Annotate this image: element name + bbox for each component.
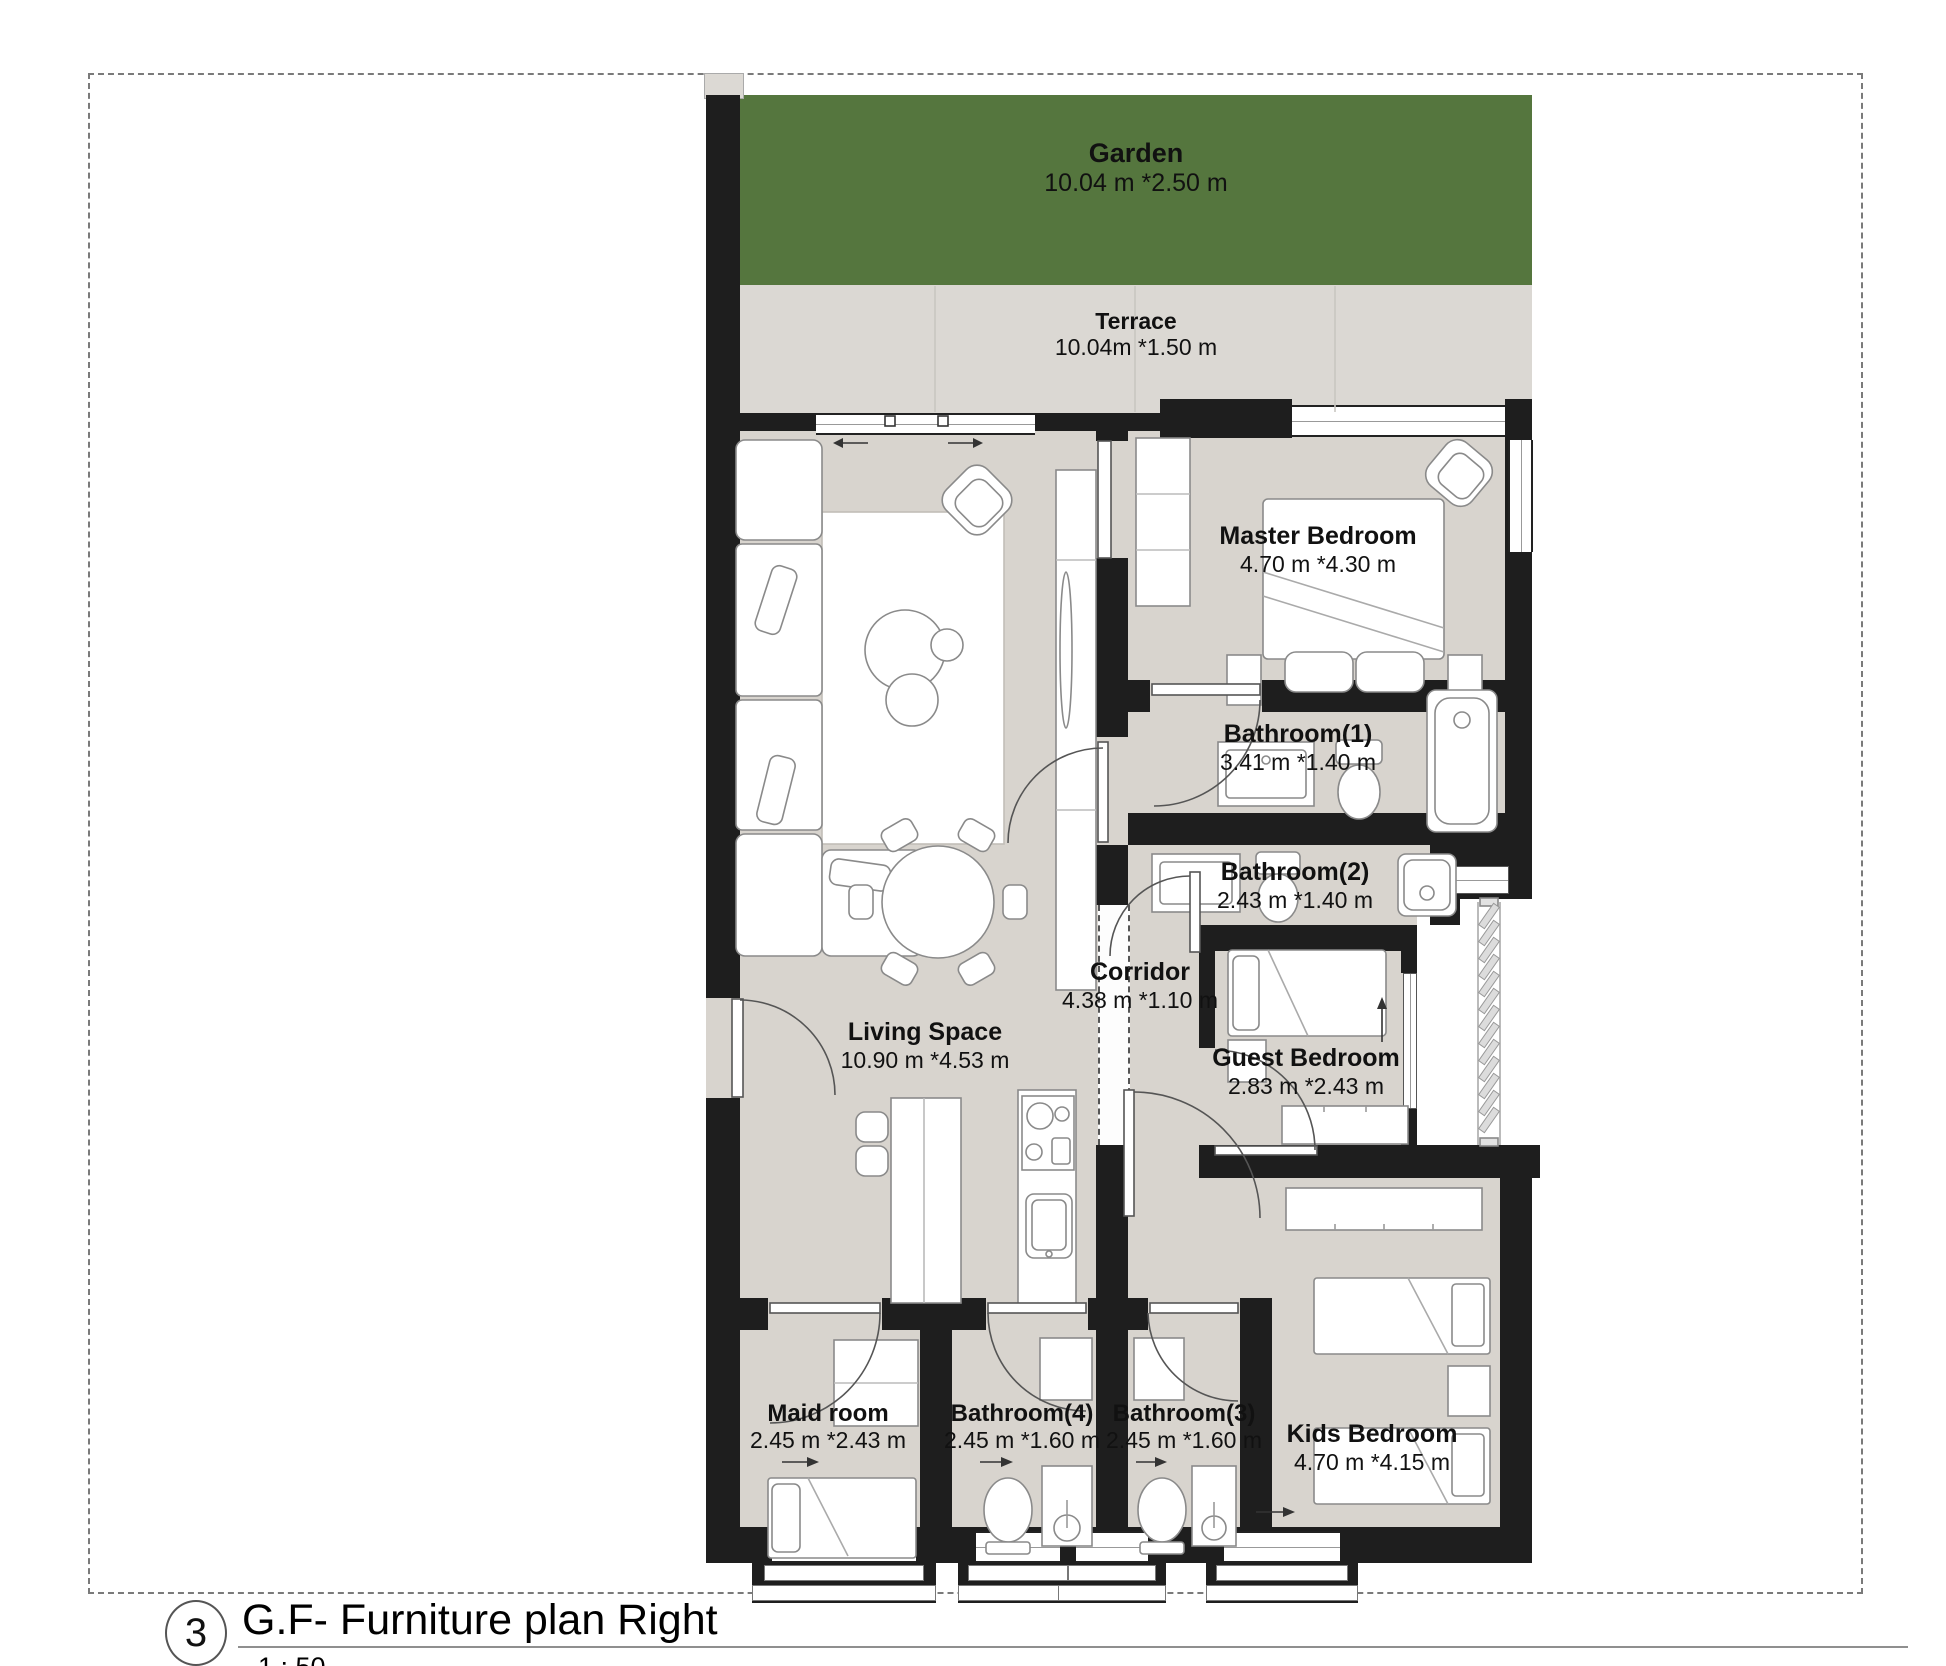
wall-bath2-right <box>1430 899 1460 925</box>
sheet-scale: 1 : 50 <box>258 1652 326 1666</box>
room-label-kids-bedroom: Kids Bedroom 4.70 m *4.15 m <box>1287 1420 1458 1475</box>
wall-guest-east-1 <box>1401 925 1417 973</box>
window-maid-south <box>772 1531 916 1563</box>
room-label-bathroom2: Bathroom(2) 2.43 m *1.40 m <box>1217 858 1373 913</box>
door-gap-maid <box>768 1298 882 1330</box>
wall-guest-north <box>1199 925 1417 951</box>
wall-master-top <box>1160 399 1292 438</box>
sheet-number: 3 <box>185 1611 207 1656</box>
wall-top-2 <box>1035 413 1161 431</box>
sill-step <box>752 1585 936 1601</box>
sill-step <box>1068 1565 1156 1581</box>
floor-plan-sheet: Garden 10.04 m *2.50 m Terrace 10.04m *1… <box>0 0 1946 1666</box>
room-label-corridor: Corridor 4.38 m *1.10 m <box>1062 958 1218 1013</box>
wall-kids-east <box>1500 1178 1532 1527</box>
window-master-north <box>1292 405 1505 437</box>
exterior-notch <box>1417 899 1532 1145</box>
corridor-passage <box>1098 905 1130 1145</box>
wall-top-1 <box>740 413 816 431</box>
door-gap-master-south <box>1150 680 1262 712</box>
window-guest-east <box>1403 973 1417 1109</box>
sill-step <box>764 1565 924 1581</box>
wall-guest-east-2 <box>1401 1107 1417 1145</box>
wall-spine-stub <box>1096 431 1128 441</box>
room-label-bathroom1: Bathroom(1) 3.41 m *1.40 m <box>1220 720 1376 775</box>
wall-spine-b <box>1096 845 1128 905</box>
window-sliding-living <box>816 413 1035 435</box>
room-label-bathroom4: Bathroom(4) 2.45 m *1.60 m <box>944 1400 1100 1454</box>
sheet-title: G.F- Furniture plan Right <box>242 1596 718 1645</box>
wall-spine-a <box>1096 558 1128 737</box>
window-bath-block <box>1455 866 1509 894</box>
door-gap-bath4 <box>986 1298 1088 1330</box>
sill-step <box>1206 1585 1358 1601</box>
title-underline <box>238 1646 1908 1648</box>
door-gap-bath3 <box>1148 1298 1240 1330</box>
room-label-living-space: Living Space 10.90 m *4.53 m <box>841 1018 1010 1073</box>
wall-left <box>706 95 740 1563</box>
window-master-east <box>1508 440 1533 552</box>
window-kids-south <box>1224 1531 1340 1563</box>
room-label-bathroom3: Bathroom(3) 2.45 m *1.60 m <box>1106 1400 1262 1454</box>
window-bath3-south <box>1076 1531 1148 1563</box>
window-bath4-south <box>976 1531 1060 1563</box>
sill-step <box>1058 1585 1166 1601</box>
sheet-number-badge: 3 <box>165 1600 227 1666</box>
wall-top-right-corner <box>1505 399 1532 438</box>
room-label-master-bedroom: Master Bedroom 4.70 m *4.30 m <box>1219 522 1416 577</box>
room-label-terrace: Terrace 10.04m *1.50 m <box>1055 308 1217 360</box>
sill-step <box>1216 1565 1348 1581</box>
sill-step <box>968 1565 1068 1581</box>
room-label-garden: Garden 10.04 m *2.50 m <box>1044 138 1227 197</box>
room-label-guest-bedroom: Guest Bedroom 2.83 m *2.43 m <box>1212 1044 1400 1099</box>
room-label-maid-room: Maid room 2.45 m *2.43 m <box>750 1400 906 1454</box>
wall-bath1-south <box>1128 813 1430 845</box>
door-gap-entrance <box>706 998 740 1098</box>
wall-guest-south <box>1199 1145 1540 1178</box>
